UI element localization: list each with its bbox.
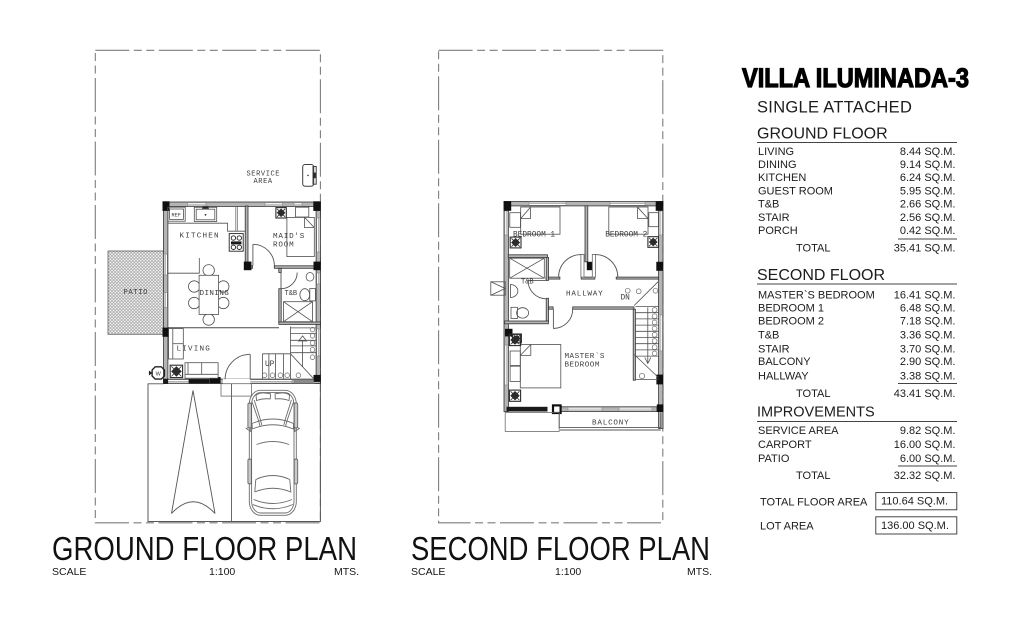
svg-text:HALLWAY: HALLWAY [566,290,604,298]
svg-text:BALCONY: BALCONY [758,356,811,368]
svg-text:BEDROOM 1: BEDROOM 1 [758,303,824,315]
svg-text:32.32 SQ.M.: 32.32 SQ.M. [894,470,956,482]
svg-text:ROOM: ROOM [273,242,294,250]
svg-text:5.95 SQ.M.: 5.95 SQ.M. [900,185,956,197]
svg-text:HALLWAY: HALLWAY [758,371,809,383]
svg-text:REF: REF [172,212,181,218]
svg-text:TOTAL: TOTAL [796,388,830,400]
svg-text:T&B: T&B [521,278,534,286]
svg-text:8.44 SQ.M.: 8.44 SQ.M. [900,146,956,158]
svg-text:2.56 SQ.M.: 2.56 SQ.M. [900,212,956,224]
svg-text:TOTAL: TOTAL [796,470,830,482]
svg-text:SCALE: SCALE [52,566,86,578]
svg-text:136.00 SQ.M.: 136.00 SQ.M. [881,520,949,532]
svg-text:UP: UP [265,361,275,369]
svg-text:T&B: T&B [758,199,779,211]
svg-text:7.18 SQ.M.: 7.18 SQ.M. [900,316,956,328]
svg-text:BEDROOM 1: BEDROOM 1 [513,232,555,240]
svg-text:BEDROOM 2: BEDROOM 2 [605,232,647,240]
svg-text:9.14 SQ.M.: 9.14 SQ.M. [900,159,956,171]
svg-text:KITCHEN: KITCHEN [180,232,220,240]
svg-text:3.36 SQ.M.: 3.36 SQ.M. [900,330,956,342]
svg-text:BEDROOM: BEDROOM [565,362,600,370]
svg-text:3.70 SQ.M.: 3.70 SQ.M. [900,344,956,356]
svg-text:PORCH: PORCH [758,225,798,237]
svg-text:3.38 SQ.M.: 3.38 SQ.M. [900,371,956,383]
svg-text:2.90 SQ.M.: 2.90 SQ.M. [900,356,956,368]
svg-text:16.41 SQ.M.: 16.41 SQ.M. [894,290,956,302]
svg-text:DINING: DINING [758,159,797,171]
svg-text:BALCONY: BALCONY [592,420,630,428]
svg-text:AREA: AREA [254,178,273,186]
svg-text:6.24 SQ.M.: 6.24 SQ.M. [900,172,956,184]
svg-text:SERVICE AREA: SERVICE AREA [758,425,839,437]
svg-text:KITCHEN: KITCHEN [758,172,806,184]
svg-text:GUEST ROOM: GUEST ROOM [758,185,833,197]
svg-text:2.66 SQ.M.: 2.66 SQ.M. [900,199,956,211]
svg-text:VILLA ILUMINADA-3: VILLA ILUMINADA-3 [742,63,969,93]
svg-text:SECOND FLOOR PLAN: SECOND FLOOR PLAN [411,531,710,568]
svg-text:LIVING: LIVING [177,346,212,354]
svg-text:CARPORT: CARPORT [758,439,812,451]
svg-text:PATIO: PATIO [124,289,149,297]
svg-text:STAIR: STAIR [758,344,790,356]
svg-text:LOT AREA: LOT AREA [760,521,814,533]
svg-text:SCALE: SCALE [411,566,445,578]
svg-text:STAIR: STAIR [758,212,790,224]
svg-text:9.82 SQ.M.: 9.82 SQ.M. [900,425,956,437]
svg-text:SINGLE ATTACHED: SINGLE ATTACHED [757,99,912,117]
svg-text:PATIO: PATIO [758,453,790,465]
svg-text:0.42 SQ.M.: 0.42 SQ.M. [900,225,956,237]
svg-text:W: W [156,372,162,378]
svg-text:T&B: T&B [758,330,779,342]
svg-text:TOTAL: TOTAL [796,243,830,255]
svg-text:GROUND FLOOR PLAN: GROUND FLOOR PLAN [52,531,357,568]
svg-text:GROUND FLOOR: GROUND FLOOR [757,126,888,143]
svg-text:LIVING: LIVING [758,146,794,158]
svg-text:1:100: 1:100 [209,566,235,578]
svg-text:TOTAL FLOOR AREA: TOTAL FLOOR AREA [760,497,868,509]
svg-text:6.48 SQ.M.: 6.48 SQ.M. [900,303,956,315]
svg-text:SECOND FLOOR: SECOND FLOOR [757,267,885,284]
svg-text:16.00 SQ.M.: 16.00 SQ.M. [894,439,956,451]
svg-text:BEDROOM 2: BEDROOM 2 [758,316,824,328]
svg-text:MTS.: MTS. [334,566,359,578]
svg-text:110.64 SQ.M.: 110.64 SQ.M. [881,496,948,508]
svg-text:T&B: T&B [285,290,298,298]
svg-text:35.41 SQ.M.: 35.41 SQ.M. [894,243,956,255]
svg-text:MASTER`S: MASTER`S [565,353,605,361]
svg-text:DINING: DINING [200,290,230,298]
svg-text:MASTER`S BEDROOM: MASTER`S BEDROOM [758,290,875,302]
svg-text:6.00 SQ.M.: 6.00 SQ.M. [900,453,956,465]
svg-text:IMPROVEMENTS: IMPROVEMENTS [757,405,875,421]
svg-text:43.41 SQ.M.: 43.41 SQ.M. [894,388,956,400]
svg-text:MAID'S: MAID'S [273,233,305,241]
svg-text:1:100: 1:100 [555,566,581,578]
svg-text:DN: DN [621,295,631,303]
svg-text:MTS.: MTS. [687,566,712,578]
